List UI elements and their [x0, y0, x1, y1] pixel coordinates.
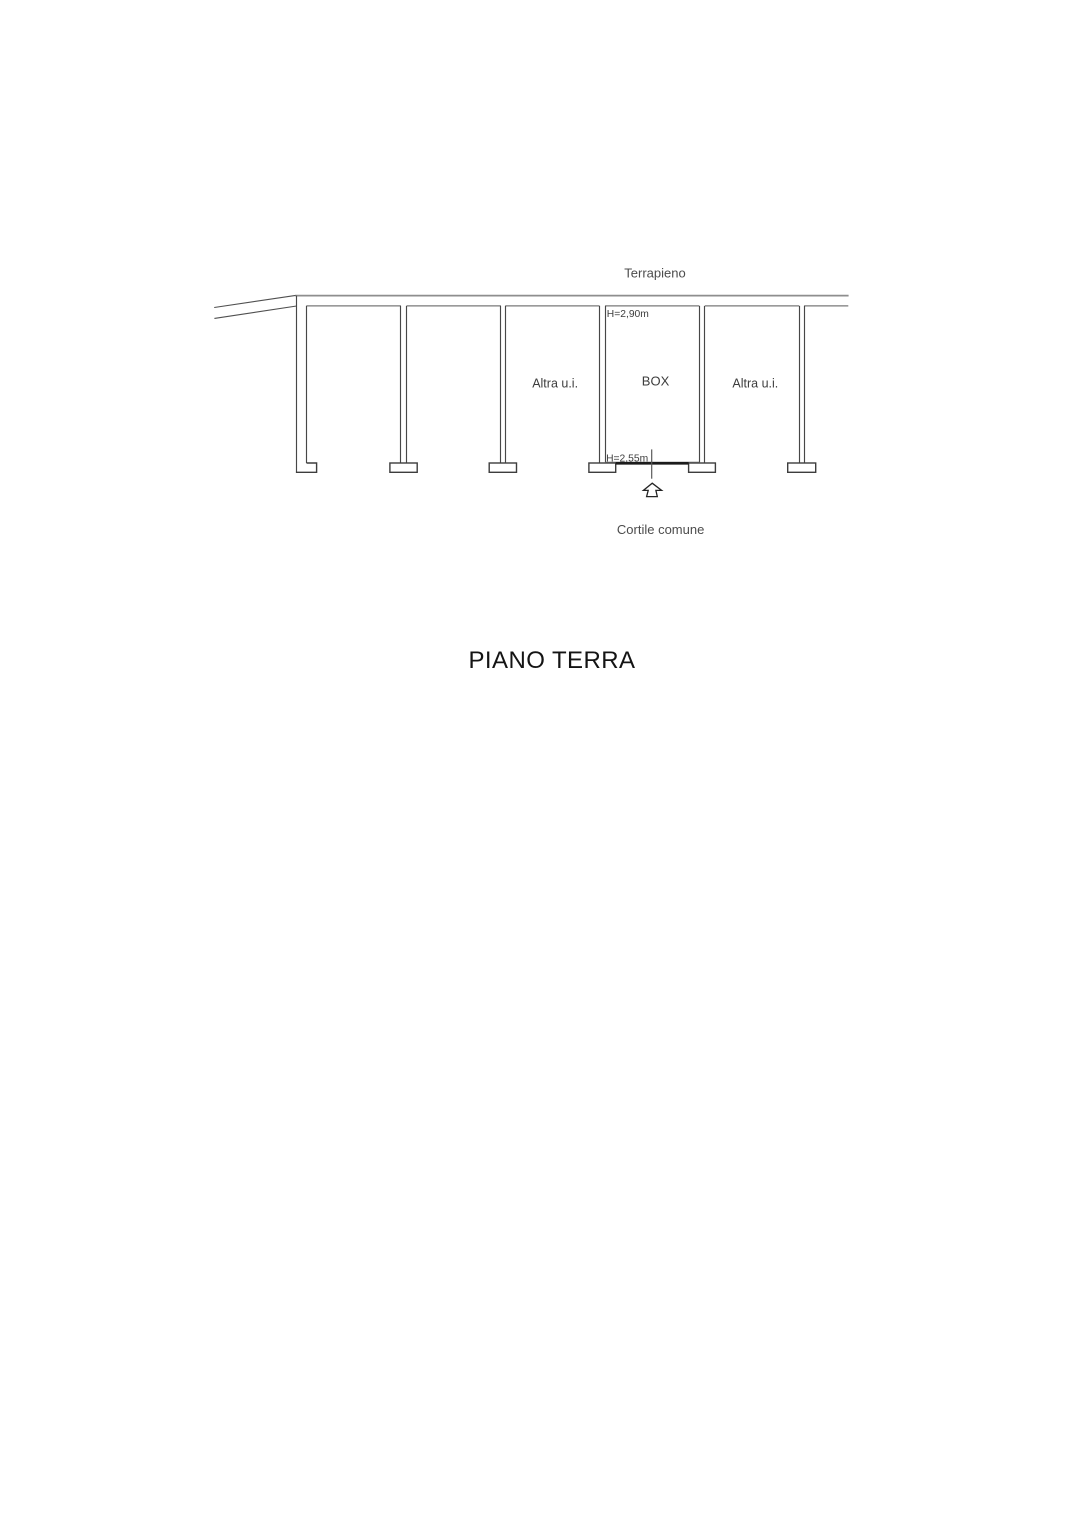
- svg-text:Altra u.i.: Altra u.i.: [532, 376, 578, 390]
- svg-text:PIANO TERRA: PIANO TERRA: [469, 647, 636, 674]
- svg-text:BOX: BOX: [642, 374, 670, 389]
- svg-text:Terrapieno: Terrapieno: [624, 266, 685, 281]
- svg-text:Altra u.i.: Altra u.i.: [732, 376, 778, 390]
- svg-text:Cortile comune: Cortile comune: [617, 522, 704, 537]
- svg-text:H=2,90m: H=2,90m: [607, 309, 649, 320]
